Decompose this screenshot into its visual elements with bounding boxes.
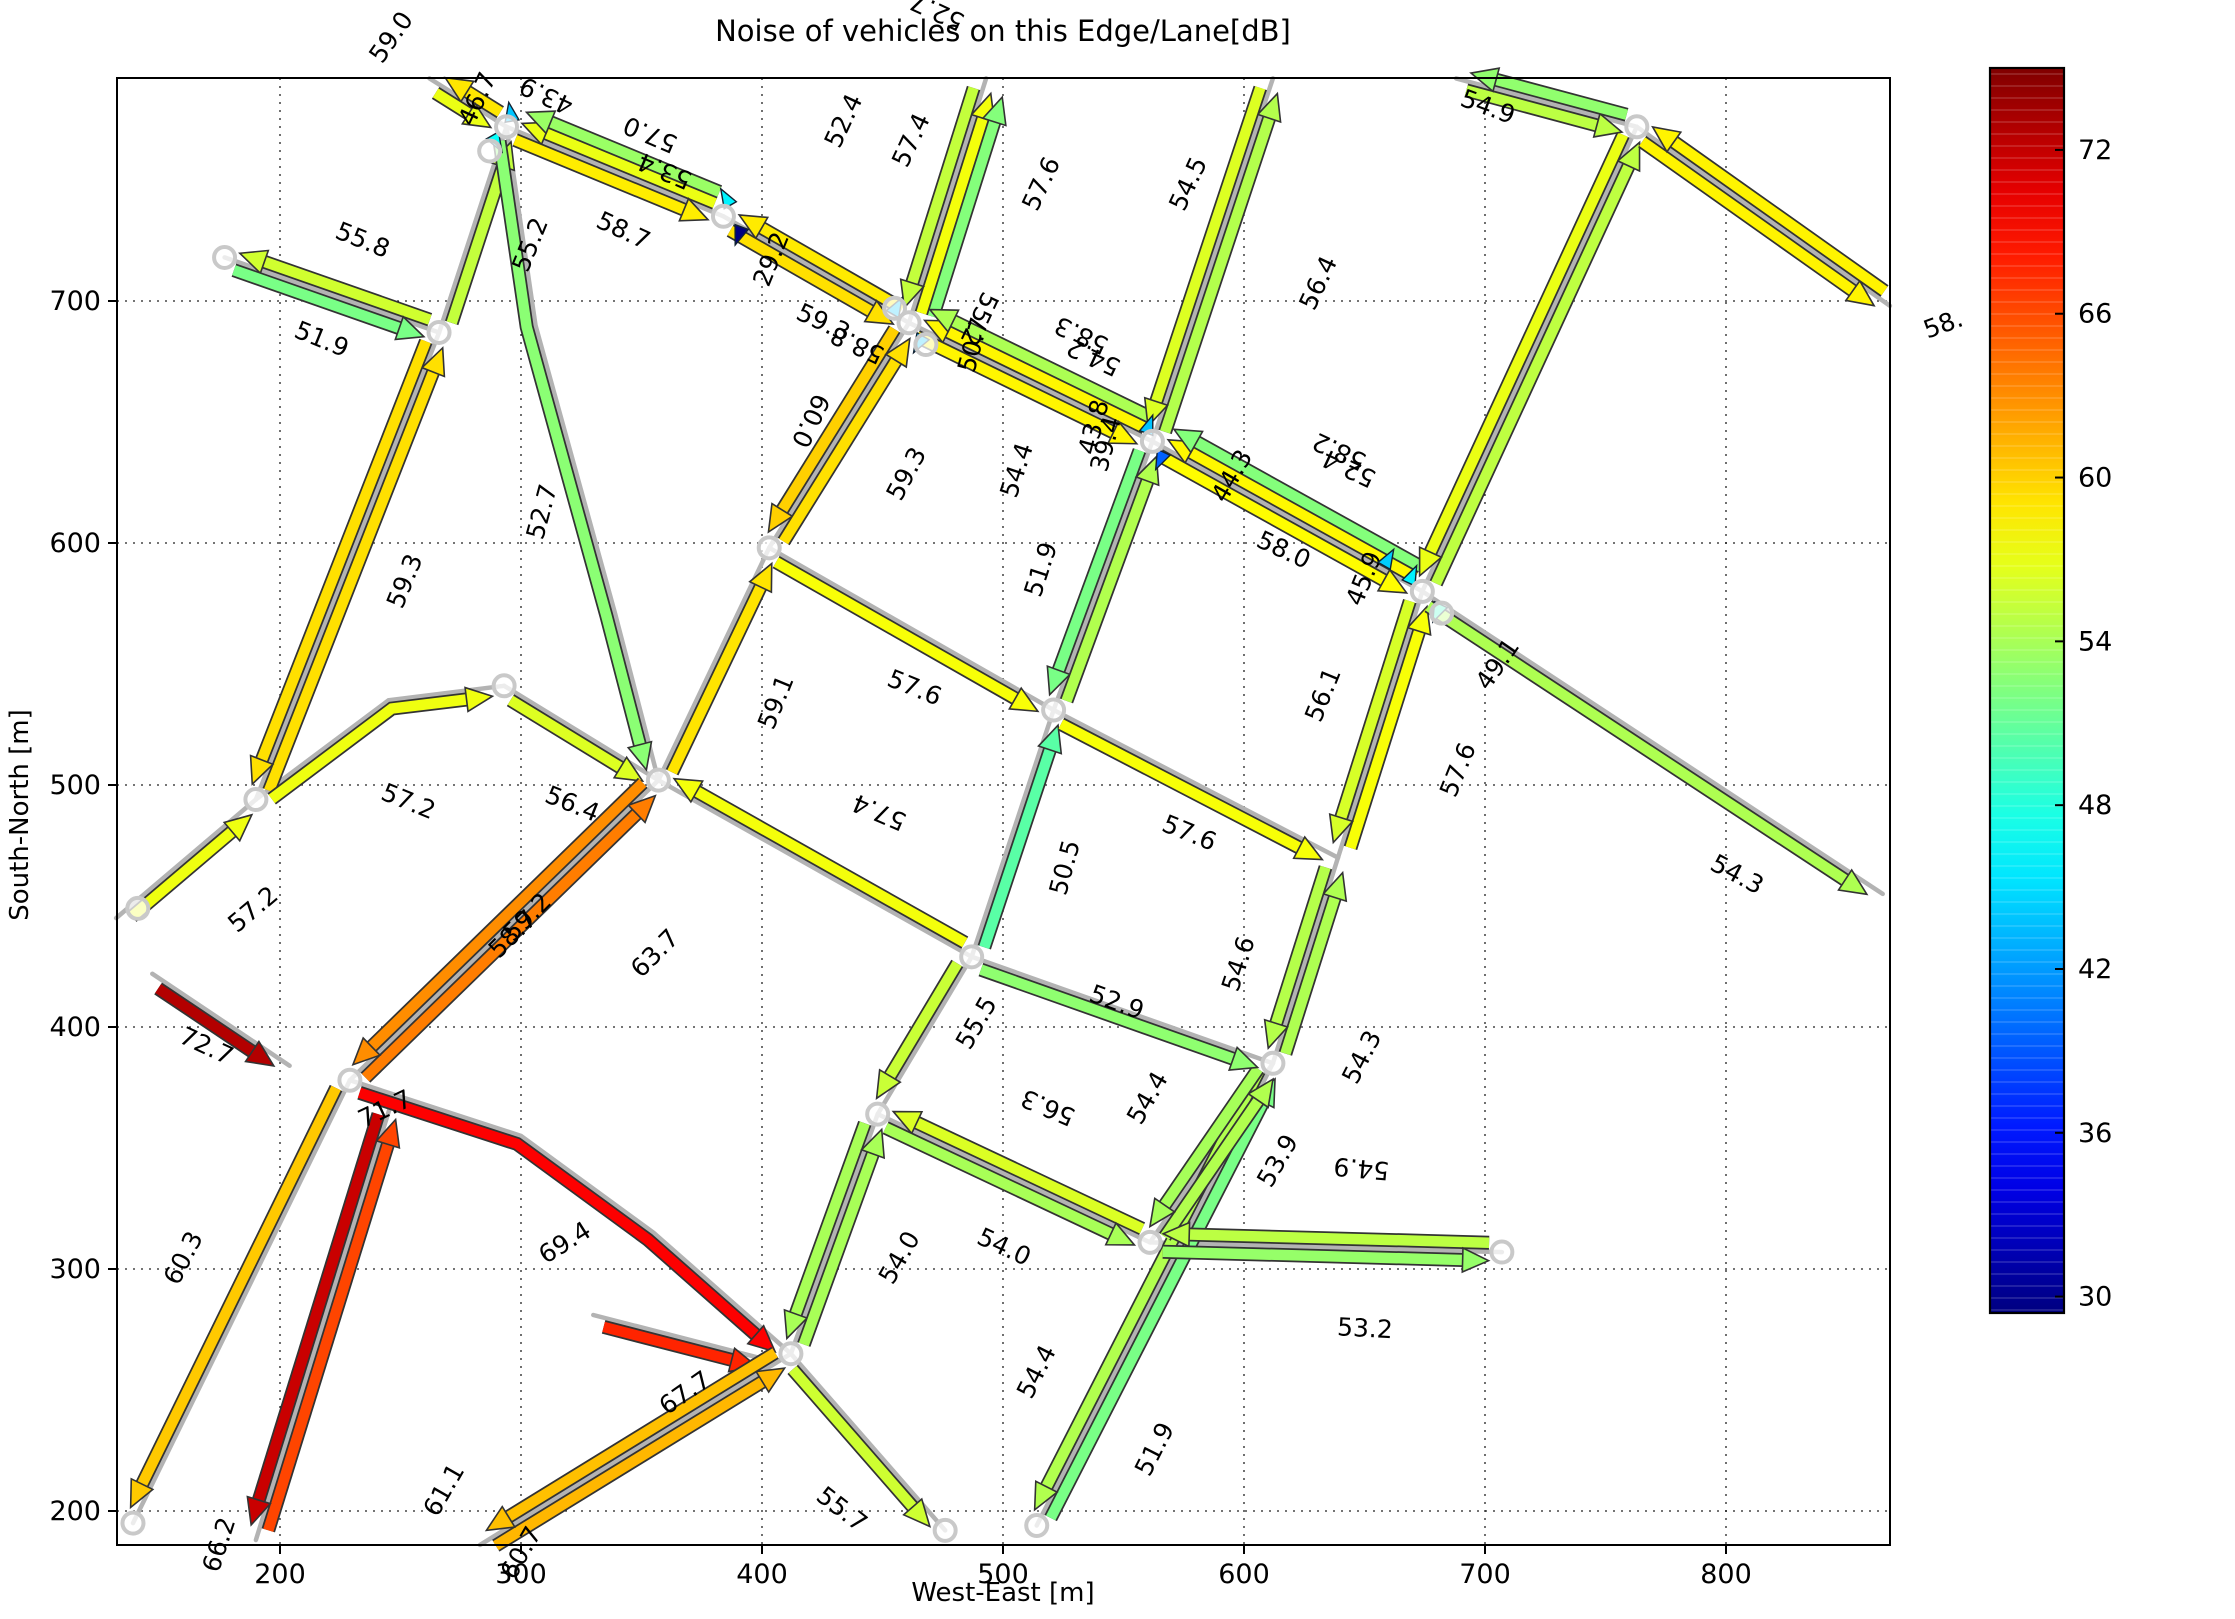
edge-labels: 55.851.955.252.759.357.257.256.463.758.7… xyxy=(158,0,1967,1584)
y-tick-label: 200 xyxy=(49,1496,101,1527)
lane-arrow-shaft xyxy=(917,1123,1142,1229)
lane-arrow-shaft xyxy=(886,1128,1111,1234)
colorbar-tick-label: 36 xyxy=(2078,1118,2112,1149)
lane-arrow-shaft xyxy=(672,587,761,772)
junction-node xyxy=(1140,1232,1161,1253)
street-centerline xyxy=(1054,441,1153,710)
edge-label: 55.7 xyxy=(811,1481,873,1538)
lane-arrow-shaft xyxy=(697,792,965,943)
junction-node xyxy=(915,334,936,355)
edge-label: 57.6 xyxy=(883,664,945,712)
lane-arrow-shaft xyxy=(496,1382,763,1546)
junction-node xyxy=(1026,1515,1047,1536)
junction-node xyxy=(494,675,515,696)
colorbar-tick-label: 60 xyxy=(2078,463,2112,494)
edge-label: 60.3 xyxy=(158,1226,209,1289)
y-tick-label: 600 xyxy=(49,528,101,559)
junction-node xyxy=(899,312,920,333)
edge-label: 59.3 xyxy=(880,442,932,505)
edge-label: 57.6 xyxy=(1016,152,1066,215)
lane-arrow-shaft xyxy=(372,783,643,1047)
street-centerline xyxy=(1338,591,1422,857)
edge-label: 57.4 xyxy=(886,109,936,172)
colorbar-tick-label: 30 xyxy=(2078,1282,2112,1313)
edge-label: 54.9 xyxy=(1332,1152,1390,1186)
x-tick-label: 500 xyxy=(977,1559,1029,1590)
junction-node xyxy=(1431,603,1452,624)
edge-label: 54.0 xyxy=(873,1226,926,1289)
figure: Noise of vehicles on this Edge/Lane[dB] … xyxy=(0,0,2235,1619)
lane-arrow-shaft xyxy=(360,1093,756,1335)
edge-label: 58.7 xyxy=(592,205,655,255)
colorbar: 3036424854606672 xyxy=(1990,68,2112,1313)
lane-arrow-shaft xyxy=(259,1114,379,1500)
street-centerline xyxy=(480,1354,791,1545)
edge-label: 57.6 xyxy=(1158,809,1220,857)
junction-node xyxy=(339,1070,360,1091)
edge-label: 52.7 xyxy=(520,481,562,542)
junction-node xyxy=(122,1513,143,1534)
edge-label: 55.8 xyxy=(331,216,393,264)
edge-label: 53.9 xyxy=(1251,1129,1304,1192)
lane-arrow-shaft xyxy=(984,750,1050,948)
lane-arrow-shaft xyxy=(452,167,503,323)
lane-arrow-shaft xyxy=(1642,142,1853,291)
x-tick-label: 600 xyxy=(1218,1559,1270,1590)
lane-arrow-shaft xyxy=(1059,451,1140,671)
edge-label: 51.9 xyxy=(291,315,353,363)
lane-arrow-shaft xyxy=(1674,142,1885,291)
lane-arrow-shaft xyxy=(511,700,621,767)
x-tick-label: 400 xyxy=(736,1559,788,1590)
x-tick-label: 300 xyxy=(495,1559,547,1590)
junction-node xyxy=(961,946,982,967)
junction-node xyxy=(1491,1242,1512,1263)
junction-node xyxy=(780,1343,801,1364)
edge-label: 52.4 xyxy=(819,89,869,152)
junction-node xyxy=(1626,116,1647,137)
edge-label: 54.4 xyxy=(1011,1340,1062,1403)
x-tick-label: 800 xyxy=(1700,1559,1752,1590)
edge-label: 56.1 xyxy=(1299,663,1347,725)
colorbar-tick-label: 42 xyxy=(2078,954,2112,985)
edge-label: 59.0 xyxy=(363,6,419,68)
edge-label: 57.6 xyxy=(1434,738,1482,800)
edge-label: 54.4 xyxy=(994,439,1039,501)
edge-label: 56.3 xyxy=(1017,1083,1080,1131)
edge-label: 54.0 xyxy=(973,1222,1036,1272)
junction-node xyxy=(713,206,734,227)
y-tick-label: 700 xyxy=(49,286,101,317)
edge-label: 53.2 xyxy=(1336,1312,1393,1344)
lane-arrow-shaft xyxy=(1436,166,1629,584)
lane-arrow-shaft xyxy=(1431,135,1624,552)
edge-label: 55.5 xyxy=(950,991,1003,1054)
lane-arrow-shaft xyxy=(784,361,896,542)
edge-label: 51.9 xyxy=(1129,1418,1180,1481)
edge-label: 57.2 xyxy=(222,880,283,938)
edge-label: 59.3 xyxy=(381,550,429,612)
junction-node xyxy=(759,537,780,558)
junction-node xyxy=(1043,699,1064,720)
street-centerline xyxy=(658,780,971,957)
noise-map-canvas: 55.851.955.252.759.357.257.256.463.758.7… xyxy=(0,0,2235,1619)
edge-label: 54.3 xyxy=(1706,848,1769,900)
junction-node xyxy=(496,116,517,137)
junction-node xyxy=(429,322,450,343)
edge-label: 54.3 xyxy=(1336,1026,1387,1089)
street-centerline xyxy=(1637,127,1890,306)
edge-label: 56.4 xyxy=(541,780,603,828)
junction-node xyxy=(935,1520,956,1541)
x-tick-label: 200 xyxy=(254,1559,306,1590)
edge-label: 63.7 xyxy=(625,923,685,983)
junction-node xyxy=(867,1104,888,1125)
edge-label: 59.3 xyxy=(792,297,855,347)
edge-label: 51.9 xyxy=(1018,538,1063,600)
junction-node xyxy=(1262,1053,1283,1074)
street-centerline xyxy=(1422,591,1882,894)
lane-arrow-shaft xyxy=(1156,88,1260,402)
y-tick-label: 300 xyxy=(49,1254,101,1285)
colorbar-tick-label: 48 xyxy=(2078,790,2112,821)
y-tick-label: 400 xyxy=(49,1012,101,1043)
lane-arrow-shaft xyxy=(1067,481,1148,701)
lane-arrow-shaft xyxy=(890,963,957,1076)
colorbar-tick-label: 54 xyxy=(2078,626,2112,657)
edge-label: 57.4 xyxy=(848,788,911,836)
junction-node xyxy=(479,140,500,161)
edge-label: 59.1 xyxy=(752,671,800,733)
edge-label: 54.6 xyxy=(1216,933,1261,995)
edge-label: 61.1 xyxy=(417,1458,470,1521)
lane-arrow-shaft xyxy=(793,1369,913,1507)
x-tick-label: 700 xyxy=(1459,1559,1511,1590)
junction-node xyxy=(245,789,266,810)
y-tick-label: 500 xyxy=(49,770,101,801)
edge-label: 54.5 xyxy=(1163,152,1213,215)
street-centerline xyxy=(1422,127,1637,592)
junction-node xyxy=(648,770,669,791)
edge-label: 69.4 xyxy=(533,1215,596,1269)
junction-node xyxy=(1142,431,1163,452)
street-centerline xyxy=(878,1114,1150,1242)
street-centerline xyxy=(256,1104,391,1540)
lane-arrow-head xyxy=(465,688,492,712)
junction-node xyxy=(214,247,235,268)
colorbar-tick-label: 72 xyxy=(2078,135,2112,166)
edge-label: 56.4 xyxy=(1293,252,1343,315)
edge-label: 54.4 xyxy=(1121,1066,1174,1129)
edge-label: 52.7 xyxy=(906,0,969,37)
edge-label: 50.5 xyxy=(1043,837,1085,898)
colorbar-tick-label: 66 xyxy=(2078,299,2112,330)
junction-node xyxy=(127,898,148,919)
lane-arrow-shaft xyxy=(509,1353,776,1517)
junction-node xyxy=(1412,581,1433,602)
colorbar-gradient xyxy=(1990,68,2064,1313)
edge-label: 58. xyxy=(1919,304,1966,345)
street-centerline xyxy=(1152,78,1273,441)
